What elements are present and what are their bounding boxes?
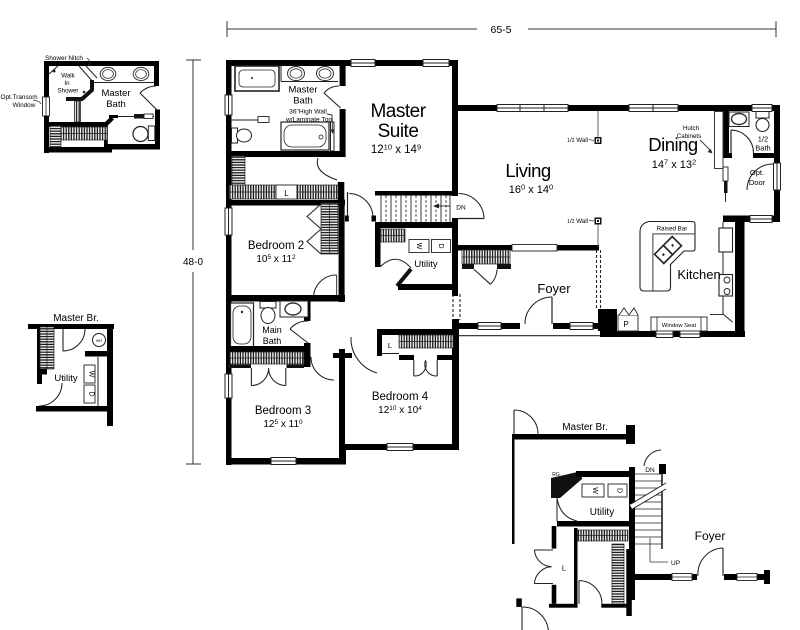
svg-text:Main: Main (262, 325, 282, 335)
svg-text:Foyer: Foyer (537, 281, 571, 296)
svg-text:D: D (616, 488, 623, 493)
svg-text:Raised Bar: Raised Bar (657, 226, 688, 233)
svg-text:1210 x 104: 1210 x 104 (378, 405, 422, 416)
svg-text:Master: Master (288, 85, 317, 96)
svg-text:D: D (88, 391, 95, 396)
svg-text:Suite: Suite (378, 121, 419, 142)
svg-text:Foyer: Foyer (695, 529, 726, 543)
svg-text:Bath: Bath (106, 99, 126, 110)
svg-text:48-0: 48-0 (183, 257, 203, 268)
svg-text:Master Br.: Master Br. (53, 313, 99, 324)
svg-text:125 x 110: 125 x 110 (263, 419, 303, 430)
svg-text:Bath: Bath (293, 96, 313, 107)
svg-text:In: In (64, 80, 70, 87)
svg-text:105 x 112: 105 x 112 (256, 254, 296, 265)
svg-text:w/Laminate Top: w/Laminate Top (285, 117, 332, 124)
svg-text:Master: Master (101, 88, 130, 99)
svg-text:Dining: Dining (648, 134, 698, 155)
svg-text:Window: Window (13, 102, 36, 109)
svg-text:36"High Wall: 36"High Wall (289, 109, 327, 116)
svg-text:W: W (591, 487, 598, 494)
svg-text:Opt.Transom: Opt.Transom (0, 94, 37, 101)
svg-text:Utility: Utility (590, 507, 614, 518)
svg-text:Bath: Bath (755, 144, 770, 153)
svg-text:Door: Door (749, 178, 766, 187)
svg-text:1/2: 1/2 (758, 135, 768, 144)
svg-text:L: L (562, 564, 566, 573)
svg-text:D: D (437, 243, 444, 248)
svg-text:Bedroom 2: Bedroom 2 (248, 240, 304, 252)
svg-text:UP: UP (671, 560, 680, 567)
svg-text:147 x 132: 147 x 132 (652, 158, 696, 172)
svg-text:Utility: Utility (414, 259, 437, 270)
svg-text:L: L (388, 341, 392, 350)
svg-text:WH: WH (96, 339, 102, 343)
svg-text:Living: Living (505, 160, 551, 181)
svg-text:1210 x 149: 1210 x 149 (371, 143, 421, 157)
svg-text:Bath: Bath (263, 336, 282, 346)
svg-text:Opt.: Opt. (750, 168, 764, 177)
svg-text:Kitchen: Kitchen (677, 267, 720, 282)
svg-text:Bedroom 4: Bedroom 4 (372, 391, 429, 403)
svg-text:Hutch: Hutch (683, 125, 700, 132)
svg-text:Window Seat: Window Seat (662, 323, 697, 329)
svg-text:Shower: Shower (58, 88, 79, 95)
svg-text:Master Br.: Master Br. (562, 422, 608, 433)
svg-text:Master: Master (370, 101, 426, 122)
svg-text:W: W (88, 371, 95, 378)
svg-text:P: P (623, 320, 628, 329)
svg-text:Walk: Walk (61, 73, 75, 80)
svg-text:DN: DN (645, 467, 655, 474)
svg-text:L: L (284, 189, 289, 198)
svg-text:1/2 Wall: 1/2 Wall (567, 137, 588, 144)
svg-text:1/2 Wall: 1/2 Wall (567, 218, 588, 225)
svg-text:Utility: Utility (54, 373, 77, 384)
svg-text:65-5: 65-5 (490, 24, 511, 36)
svg-text:W: W (415, 243, 422, 250)
svg-text:Shower Nitch: Shower Nitch (45, 55, 83, 62)
svg-text:Bedroom 3: Bedroom 3 (255, 405, 311, 417)
svg-text:DN: DN (456, 205, 466, 212)
svg-text:160 x 140: 160 x 140 (509, 183, 553, 197)
